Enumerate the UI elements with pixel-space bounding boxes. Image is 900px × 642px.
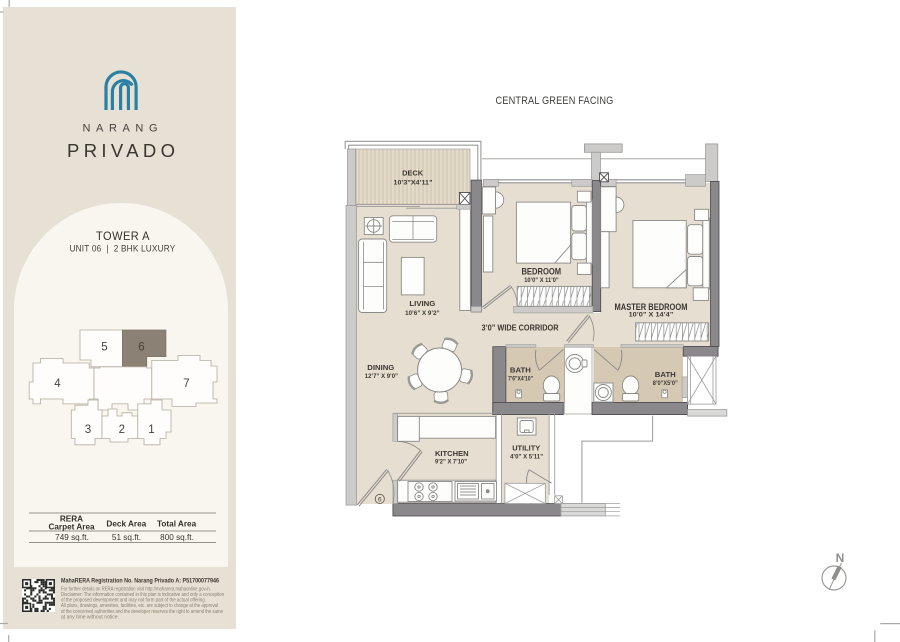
svg-text:BATH: BATH (510, 366, 531, 375)
svg-text:DINING: DINING (367, 363, 394, 372)
svg-text:KITCHEN: KITCHEN (435, 449, 469, 458)
svg-text:10’6” X 9’2”: 10’6” X 9’2” (405, 310, 440, 317)
svg-text:10’3”X4’11”: 10’3”X4’11” (394, 180, 433, 187)
svg-text:12’7” X 9’0”: 12’7” X 9’0” (365, 373, 398, 380)
svg-text:DECK: DECK (402, 169, 423, 178)
svg-text:N: N (836, 551, 845, 565)
svg-text:LIVING: LIVING (409, 299, 435, 308)
svg-text:7’6”X4’10”: 7’6”X4’10” (508, 376, 533, 383)
svg-text:6: 6 (378, 496, 382, 503)
svg-text:10’0” X 11’0”: 10’0” X 11’0” (524, 277, 559, 284)
svg-text:9’2” X 7’10”: 9’2” X 7’10” (435, 459, 467, 466)
svg-text:BATH: BATH (655, 370, 676, 379)
svg-text:8’0”X5’0”: 8’0”X5’0” (653, 380, 678, 387)
svg-text:UTILITY: UTILITY (512, 443, 540, 452)
svg-text:CENTRAL GREEN FACING: CENTRAL GREEN FACING (496, 95, 614, 107)
svg-text:4’0” X 5’11”: 4’0” X 5’11” (510, 453, 543, 460)
svg-text:3’0” WIDE CORRIDOR: 3’0” WIDE CORRIDOR (482, 323, 559, 333)
svg-text:10’0” X 14’4”: 10’0” X 14’4” (629, 311, 674, 318)
svg-text:BEDROOM: BEDROOM (521, 266, 561, 276)
